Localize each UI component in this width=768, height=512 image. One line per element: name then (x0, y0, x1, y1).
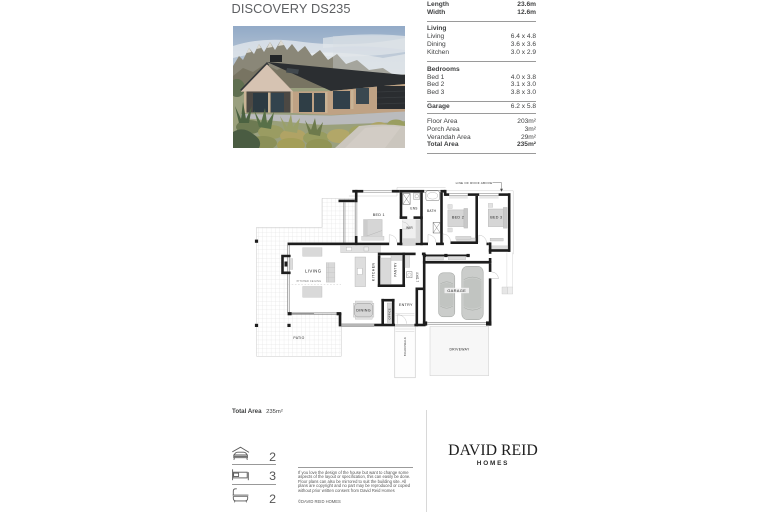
svg-text:KITCHEN: KITCHEN (372, 263, 376, 282)
svg-text:LINE OF ROOF ABOVE: LINE OF ROOF ABOVE (456, 181, 493, 185)
svg-text:LIVING: LIVING (305, 269, 322, 274)
svg-text:BOARDWALK: BOARDWALK (403, 337, 407, 356)
svg-text:BED 2: BED 2 (452, 216, 464, 220)
svg-text:DRIVEWAY: DRIVEWAY (449, 347, 470, 351)
svg-text:OFFICE: OFFICE (388, 308, 392, 319)
svg-text:BED 1: BED 1 (373, 213, 385, 217)
svg-text:WIR: WIR (406, 226, 413, 230)
svg-text:ENTRY: ENTRY (399, 303, 413, 307)
svg-text:PATIO: PATIO (293, 336, 304, 340)
svg-text:GARAGE: GARAGE (447, 288, 466, 293)
svg-text:PANTRY: PANTRY (393, 262, 397, 277)
svg-text:PITCHED CEILING: PITCHED CEILING (297, 280, 322, 283)
svg-text:L'DRY: L'DRY (415, 271, 419, 282)
svg-text:BATH: BATH (427, 209, 437, 213)
svg-text:ENS: ENS (410, 207, 417, 211)
svg-text:DINING: DINING (356, 308, 371, 312)
svg-text:BED 3: BED 3 (490, 216, 502, 220)
